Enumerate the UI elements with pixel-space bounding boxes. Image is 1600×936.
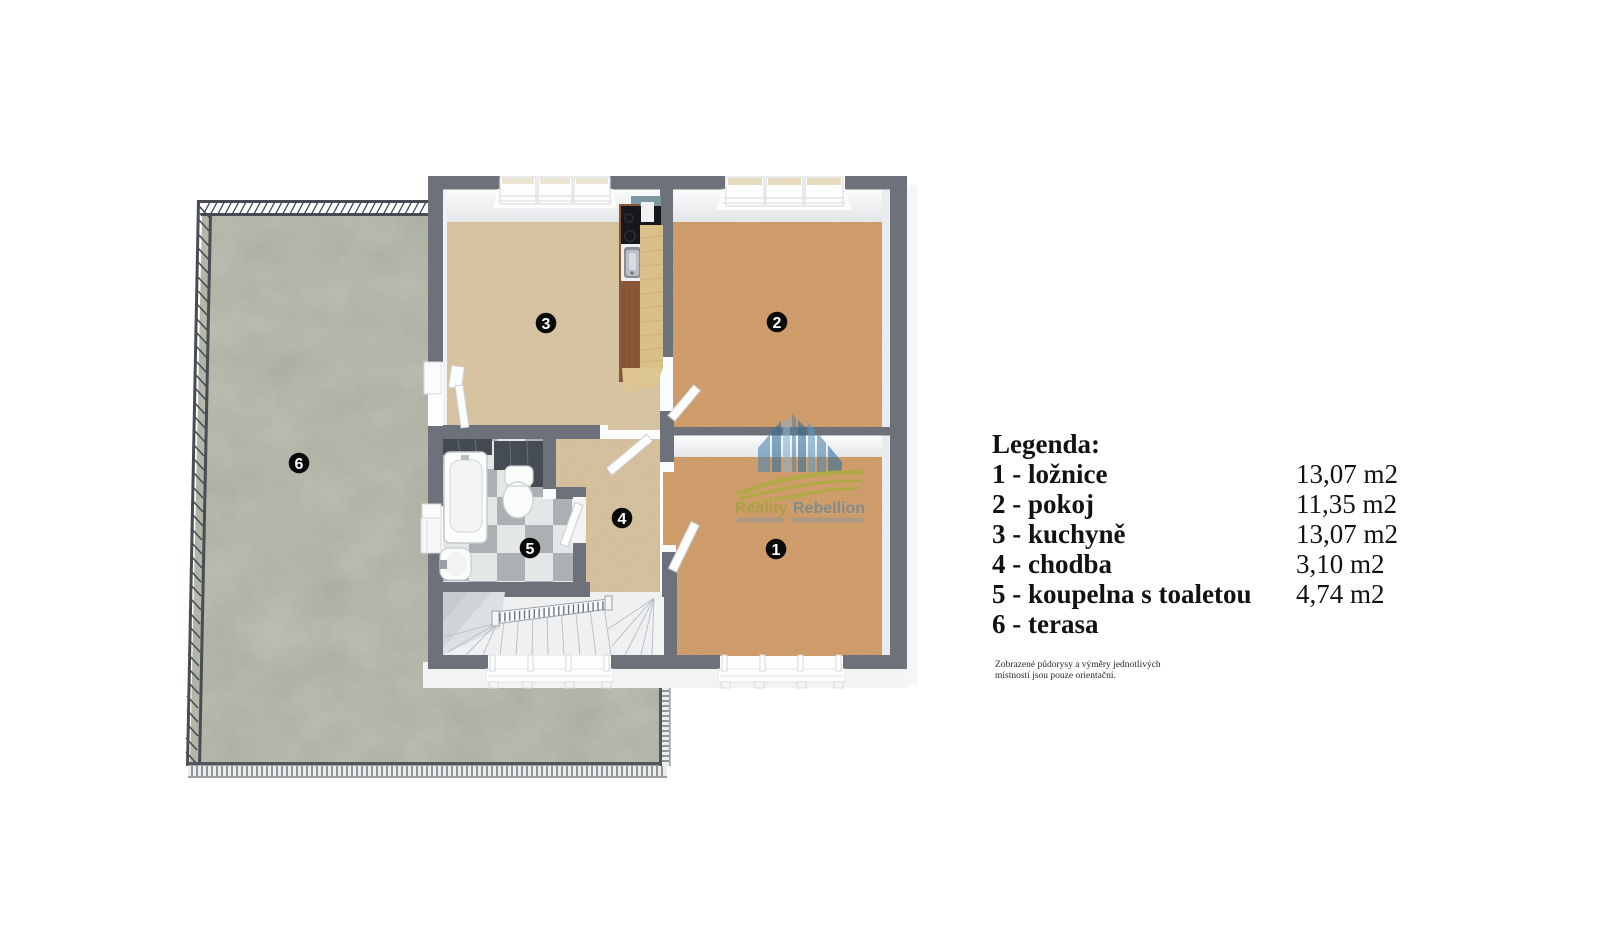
- svg-text:Reality: Reality: [735, 500, 788, 517]
- svg-text:4: 4: [618, 511, 627, 528]
- svg-text:6: 6: [295, 456, 304, 473]
- svg-text:2: 2: [773, 315, 782, 332]
- svg-text:Rebellion: Rebellion: [793, 500, 865, 517]
- svg-text:1: 1: [772, 542, 781, 559]
- svg-text:5: 5: [526, 541, 535, 558]
- svg-text:3: 3: [542, 316, 551, 333]
